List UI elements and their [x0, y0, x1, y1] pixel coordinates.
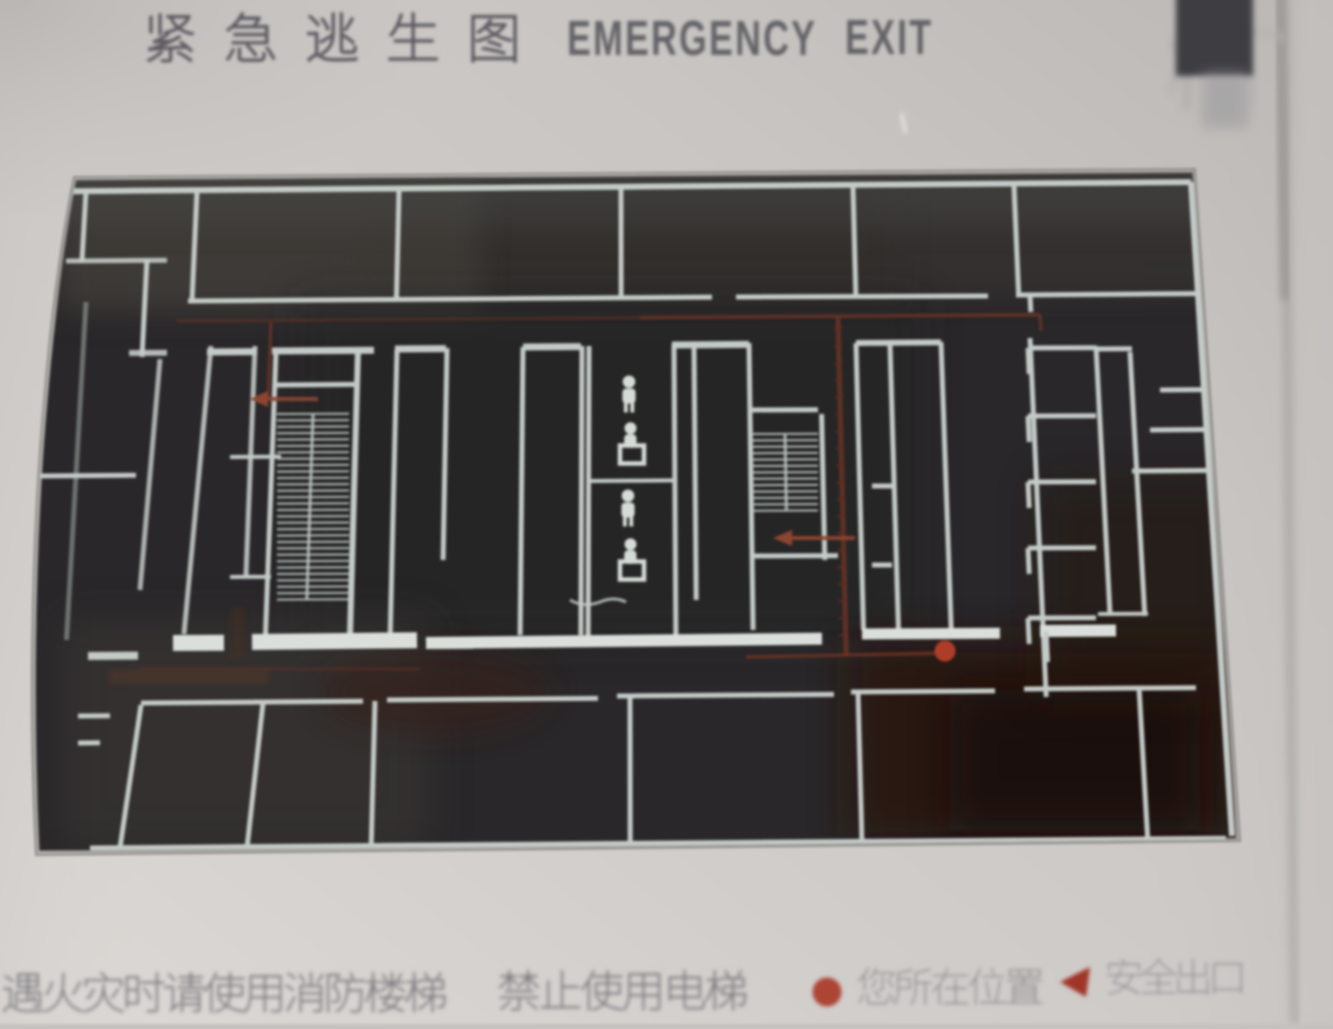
svg-text:EMERGENCY: EMERGENCY: [567, 12, 817, 67]
svg-text:EXIT: EXIT: [845, 11, 933, 66]
